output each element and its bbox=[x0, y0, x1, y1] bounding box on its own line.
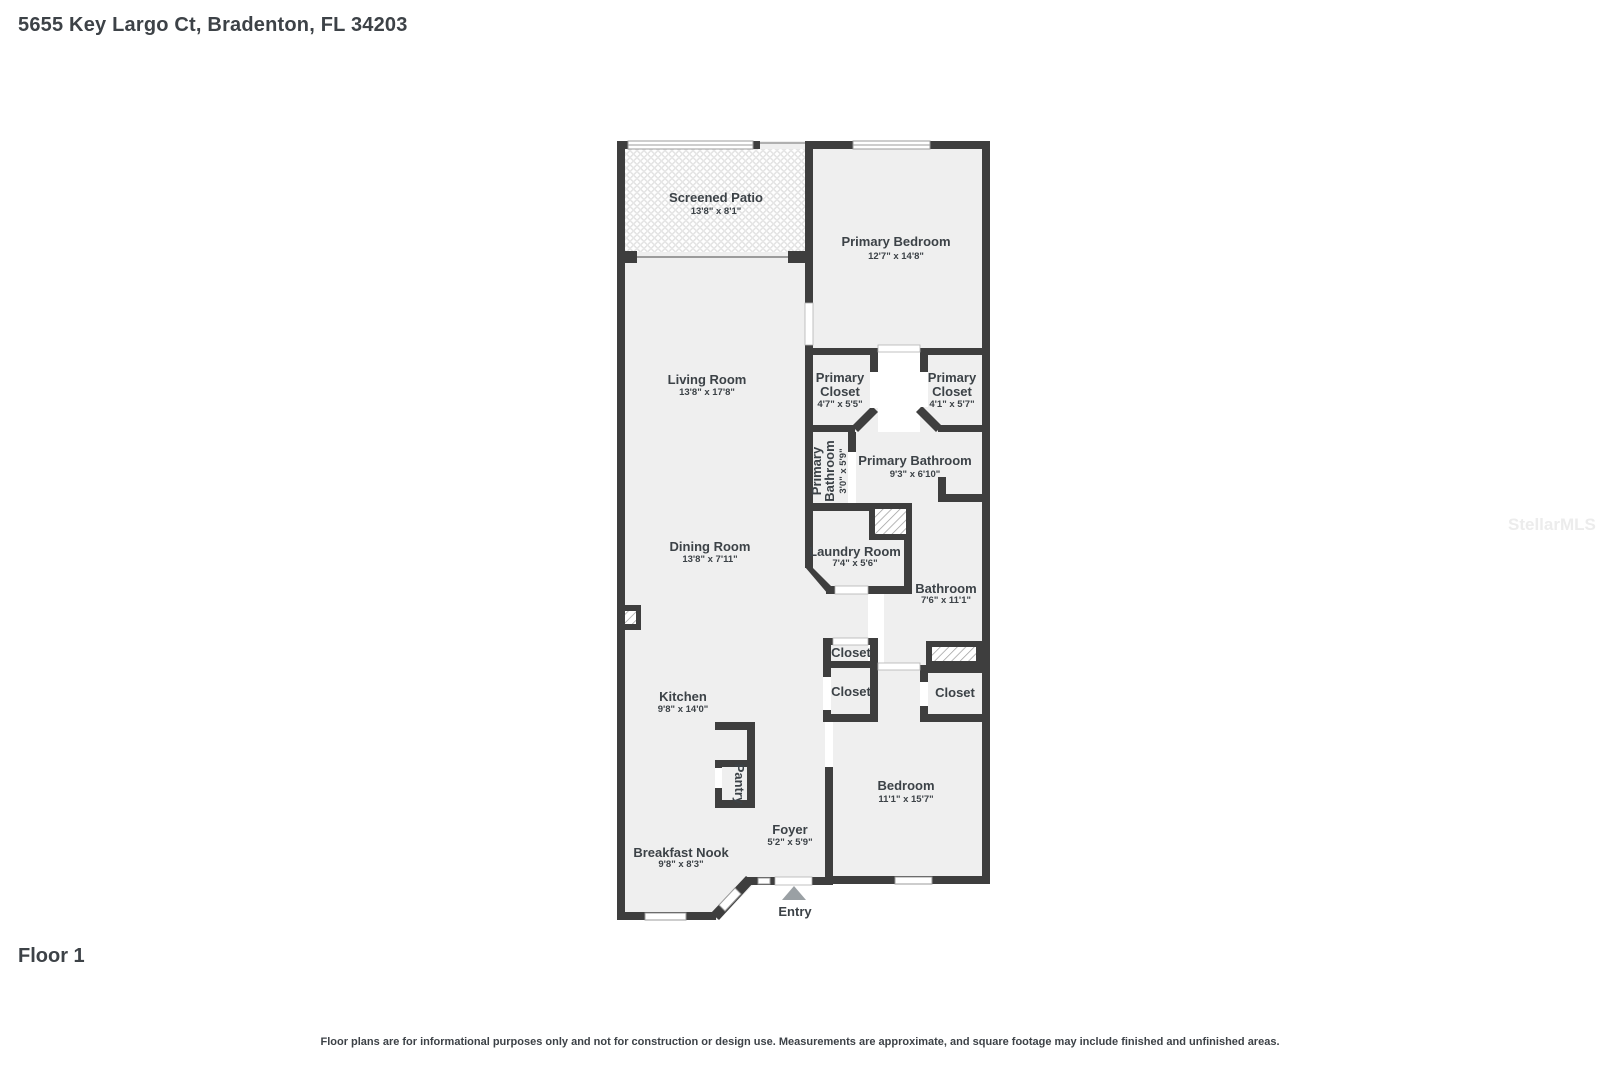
room-label-entry: Entry bbox=[778, 904, 812, 919]
bedroom-window bbox=[895, 877, 932, 884]
room-label-kitchen: Kitchen 9'8" x 14'0" bbox=[658, 689, 709, 715]
svg-text:Pantry: Pantry bbox=[732, 764, 747, 805]
svg-text:Foyer: Foyer bbox=[772, 822, 807, 837]
pantry-door bbox=[715, 768, 722, 788]
svg-text:Primary Bedroom: Primary Bedroom bbox=[841, 234, 950, 249]
bedroom-closet-door bbox=[920, 682, 928, 706]
entry-door-opening bbox=[775, 877, 812, 885]
laundry-utility-hatch bbox=[869, 503, 912, 540]
svg-text:Screened Patio: Screened Patio bbox=[669, 190, 763, 205]
floor-plan: Screened Patio 13'8" x 8'1" Primary Bedr… bbox=[0, 0, 1600, 1066]
svg-text:7'6" x 11'1": 7'6" x 11'1" bbox=[921, 595, 971, 606]
svg-text:Laundry Room: Laundry Room bbox=[809, 544, 901, 559]
svg-text:Primary Bathroom: Primary Bathroom bbox=[858, 453, 971, 468]
primary-suite-passage bbox=[878, 352, 920, 432]
room-label-bedroom-closet: Closet bbox=[935, 685, 975, 700]
primary-suite-doorway bbox=[878, 345, 920, 352]
room-label-hall-closet-2: Closet bbox=[831, 684, 871, 699]
room-label-bedroom: Bedroom 11'1" x 15'7" bbox=[877, 778, 934, 805]
svg-text:13'8" x 8'1": 13'8" x 8'1" bbox=[691, 206, 742, 217]
svg-text:PrimaryBathroom: PrimaryBathroom bbox=[809, 440, 837, 501]
svg-text:9'3" x 6'10": 9'3" x 6'10" bbox=[890, 469, 941, 480]
svg-text:Breakfast Nook: Breakfast Nook bbox=[633, 845, 729, 860]
svg-text:Living Room: Living Room bbox=[668, 372, 747, 387]
svg-text:13'8" x 17'8": 13'8" x 17'8" bbox=[679, 387, 735, 398]
svg-text:Bathroom: Bathroom bbox=[915, 581, 976, 596]
room-label-pantry: Pantry bbox=[732, 764, 747, 805]
laundry-door bbox=[835, 586, 868, 594]
svg-text:3'0" x 5'9": 3'0" x 5'9" bbox=[838, 448, 849, 493]
hall-closet-1-door bbox=[833, 638, 868, 645]
room-label-primary-closet-left: PrimaryCloset 4'7" x 5'5" bbox=[816, 370, 865, 410]
svg-text:PrimaryCloset: PrimaryCloset bbox=[816, 370, 865, 399]
svg-text:PrimaryCloset: PrimaryCloset bbox=[928, 370, 977, 399]
svg-text:Closet: Closet bbox=[935, 685, 975, 700]
bedroom-door bbox=[825, 722, 833, 767]
svg-text:13'8" x 7'11": 13'8" x 7'11" bbox=[682, 554, 737, 565]
svg-text:11'1" x 15'7": 11'1" x 15'7" bbox=[878, 794, 933, 805]
svg-text:4'7" x 5'5": 4'7" x 5'5" bbox=[817, 399, 862, 410]
entry-side-window bbox=[758, 878, 770, 884]
room-label-foyer: Foyer 5'2" x 5'9" bbox=[767, 822, 812, 848]
entry-arrow-icon bbox=[782, 886, 806, 900]
bedroom-doorway bbox=[878, 663, 920, 670]
svg-text:Dining Room: Dining Room bbox=[670, 539, 751, 554]
room-label-living-room: Living Room 13'8" x 17'8" bbox=[668, 372, 747, 398]
fireplace-niche-hatch bbox=[619, 605, 641, 630]
hall-closet-2-door bbox=[823, 677, 831, 710]
svg-text:Closet: Closet bbox=[831, 645, 871, 660]
breakfast-nook-window bbox=[645, 913, 686, 920]
svg-text:Closet: Closet bbox=[831, 684, 871, 699]
room-label-bathroom: Bathroom 7'6" x 11'1" bbox=[915, 581, 976, 606]
svg-text:Kitchen: Kitchen bbox=[659, 689, 707, 704]
primary-bedroom-door bbox=[805, 303, 813, 345]
svg-text:9'8" x 14'0": 9'8" x 14'0" bbox=[658, 704, 709, 715]
svg-text:7'4" x 5'6": 7'4" x 5'6" bbox=[832, 558, 877, 569]
svg-text:9'8" x 8'3": 9'8" x 8'3" bbox=[658, 859, 703, 870]
svg-text:12'7" x 14'8": 12'7" x 14'8" bbox=[868, 251, 924, 262]
primary-closet-left-door bbox=[870, 372, 878, 408]
svg-text:4'1" x 5'7": 4'1" x 5'7" bbox=[929, 399, 974, 410]
svg-text:5'2" x 5'9": 5'2" x 5'9" bbox=[767, 837, 812, 848]
bathroom-linen-hatch bbox=[926, 641, 982, 667]
svg-text:Bedroom: Bedroom bbox=[877, 778, 934, 793]
room-label-primary-closet-right: PrimaryCloset 4'1" x 5'7" bbox=[928, 370, 977, 410]
water-closet-door bbox=[848, 452, 856, 503]
svg-text:Entry: Entry bbox=[778, 904, 812, 919]
room-label-primary-bathroom-small: PrimaryBathroom 3'0" x 5'9" bbox=[809, 440, 849, 501]
room-label-hall-closet-1: Closet bbox=[831, 645, 871, 660]
